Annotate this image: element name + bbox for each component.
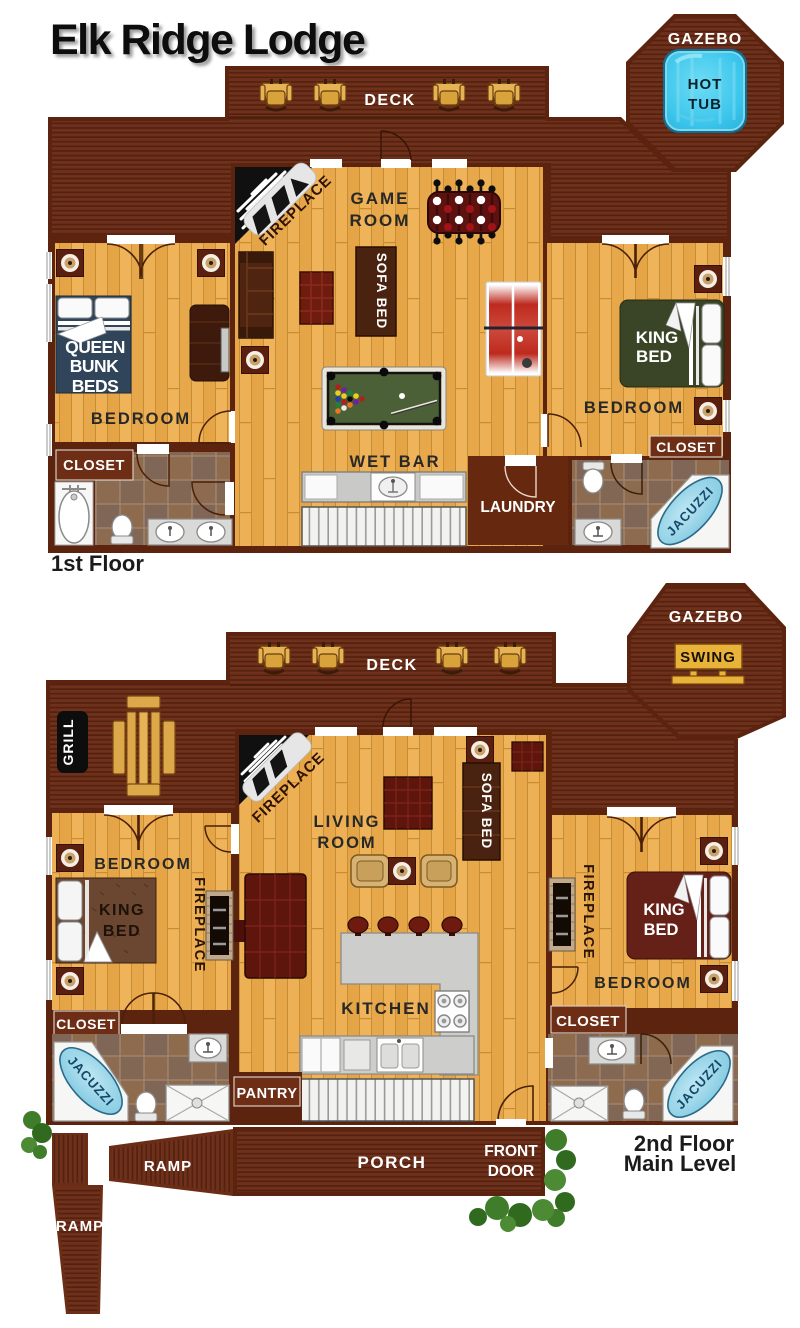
svg-text:BEDS: BEDS (72, 376, 119, 396)
svg-text:DECK: DECK (366, 657, 417, 674)
svg-text:BEDROOM: BEDROOM (594, 975, 692, 992)
svg-text:RAMP: RAMP (144, 1158, 192, 1175)
svg-text:GAME: GAME (351, 189, 410, 208)
svg-text:RAMP: RAMP (56, 1218, 104, 1235)
svg-text:SOFA BED: SOFA BED (479, 773, 494, 850)
svg-text:SOFA BED: SOFA BED (374, 253, 389, 330)
svg-text:BED: BED (103, 923, 141, 940)
svg-text:GAZEBO: GAZEBO (668, 31, 742, 48)
svg-text:PANTRY: PANTRY (237, 1086, 298, 1102)
svg-text:BEDROOM: BEDROOM (94, 856, 192, 873)
svg-text:CLOSET: CLOSET (63, 458, 125, 474)
svg-text:BEDROOM: BEDROOM (584, 399, 684, 417)
svg-text:Elk Ridge Lodge: Elk Ridge Lodge (50, 16, 365, 64)
svg-text:GAZEBO: GAZEBO (669, 609, 743, 626)
svg-text:1st Floor: 1st Floor (51, 551, 144, 576)
svg-text:FIREPLACE: FIREPLACE (580, 864, 596, 960)
svg-text:HOT: HOT (688, 76, 723, 93)
svg-text:ROOM: ROOM (350, 211, 411, 230)
svg-text:QUEEN: QUEEN (65, 337, 125, 357)
svg-text:FRONT: FRONT (484, 1143, 538, 1160)
svg-text:BED: BED (644, 921, 679, 939)
svg-text:KITCHEN: KITCHEN (341, 999, 431, 1018)
svg-text:LIVING: LIVING (313, 813, 380, 831)
svg-text:KING: KING (99, 902, 145, 919)
svg-text:BEDROOM: BEDROOM (91, 410, 191, 428)
svg-text:KING: KING (643, 901, 684, 919)
svg-text:CLOSET: CLOSET (656, 439, 716, 455)
svg-text:TUB: TUB (688, 96, 722, 113)
svg-text:DOOR: DOOR (488, 1163, 535, 1180)
svg-text:GRILL: GRILL (60, 719, 76, 766)
svg-text:CLOSET: CLOSET (56, 1016, 116, 1032)
svg-text:KING: KING (636, 328, 679, 347)
svg-text:PORCH: PORCH (358, 1153, 427, 1172)
svg-text:WET BAR: WET BAR (350, 453, 441, 471)
svg-text:SWING: SWING (680, 649, 736, 666)
svg-text:BUNK: BUNK (70, 356, 119, 376)
svg-text:Main Level: Main Level (624, 1151, 736, 1176)
svg-text:BED: BED (636, 347, 672, 366)
svg-text:FIREPLACE: FIREPLACE (191, 877, 207, 973)
svg-text:CLOSET: CLOSET (556, 1013, 620, 1030)
svg-text:LAUNDRY: LAUNDRY (480, 499, 556, 516)
svg-text:ROOM: ROOM (317, 834, 376, 852)
svg-text:DECK: DECK (364, 92, 415, 109)
